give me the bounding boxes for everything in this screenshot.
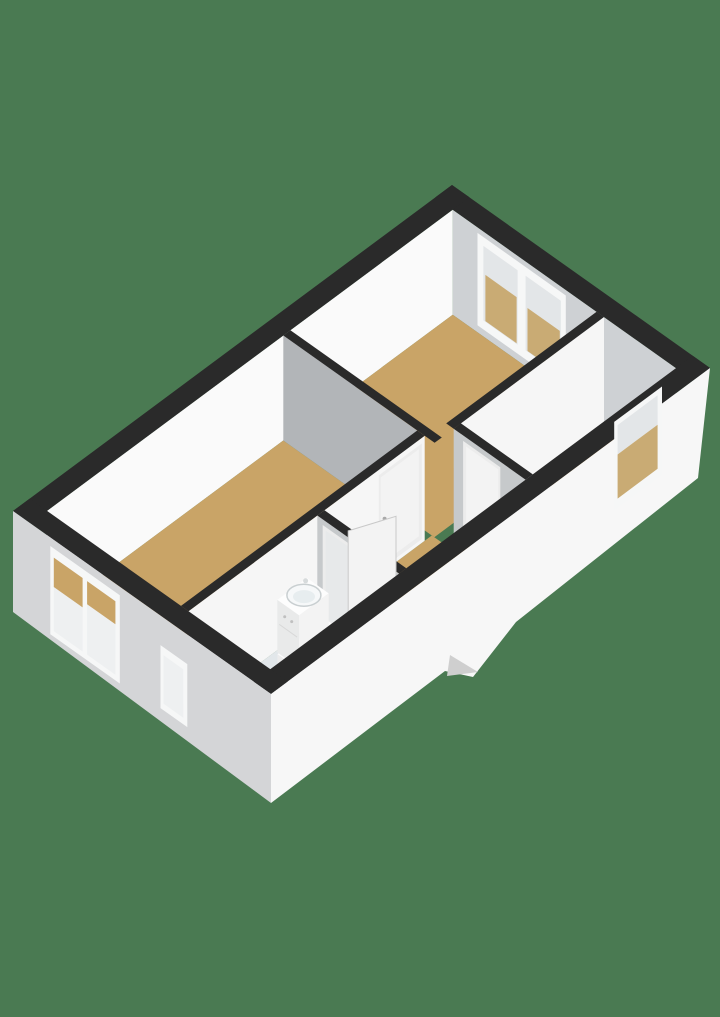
sink-faucet	[303, 578, 308, 583]
sink-cabinet-handle-2	[290, 620, 293, 623]
sink-cabinet-handle-1	[283, 615, 286, 618]
floorplan-viewport	[0, 0, 720, 1017]
sink-basin-inner	[293, 590, 315, 603]
floorplan-3d-render	[0, 0, 720, 1017]
